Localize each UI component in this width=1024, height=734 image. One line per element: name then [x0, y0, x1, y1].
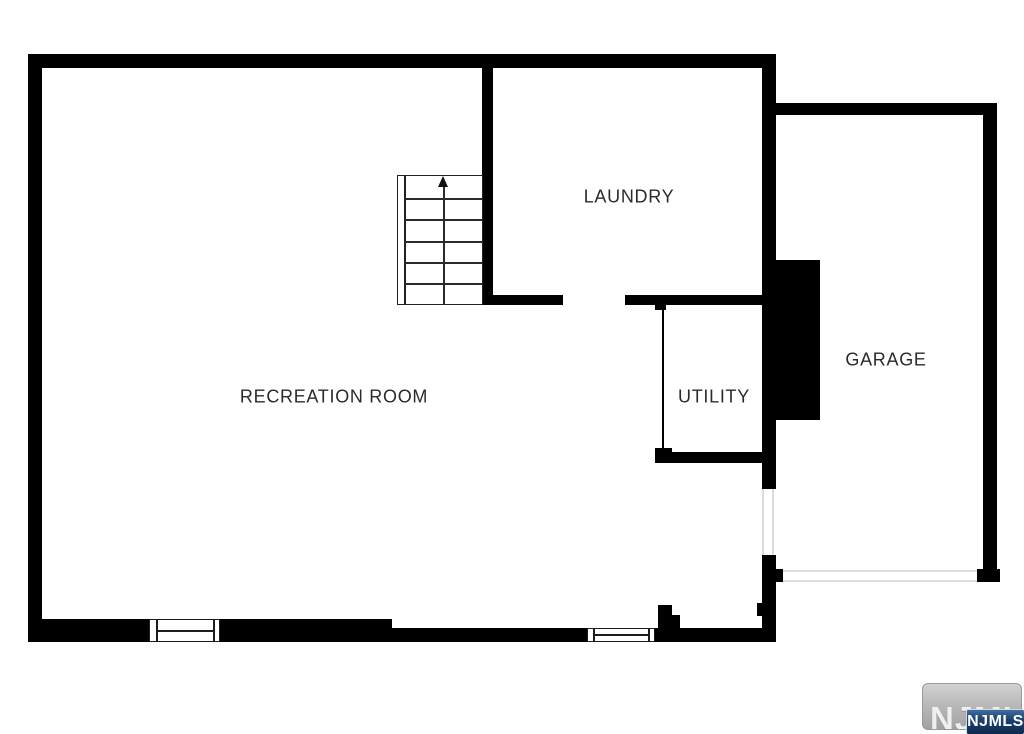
window-frame-line	[156, 630, 214, 632]
exterior-wall-right-lower	[762, 555, 776, 642]
window-recreation-room	[149, 619, 220, 642]
chimney-block	[776, 260, 820, 420]
floorplan-basement: RECREATION ROOM LAUNDRY UTILITY GARAGE N…	[0, 0, 1024, 734]
stair-direction-line	[443, 185, 445, 304]
window-frame-line	[593, 634, 649, 636]
laundry-bottom-wall-left-segment	[482, 295, 563, 305]
room-label-garage: GARAGE	[845, 350, 926, 371]
room-label-laundry: LAUNDRY	[584, 187, 675, 208]
stair-rail-line	[404, 176, 406, 304]
exterior-wall-bottom-right-segment	[392, 628, 776, 642]
exterior-wall-top	[28, 54, 776, 68]
laundry-bottom-wall-right-segment	[625, 295, 776, 305]
room-label-utility: UTILITY	[678, 387, 750, 408]
garage-doorway-frame-line	[772, 489, 774, 555]
utility-top-door-jamb	[655, 305, 666, 310]
window-bottom-right	[587, 628, 655, 642]
garage-door-line	[783, 580, 977, 582]
room-label-recreation: RECREATION ROOM	[240, 387, 428, 408]
njmls-badge-text: NJMLS	[967, 713, 1024, 731]
exterior-wall-left	[28, 54, 42, 642]
njmls-badge: NJMLS	[966, 709, 1024, 734]
utility-left-partition	[662, 310, 664, 452]
exterior-wall-right-upper	[762, 54, 776, 489]
bottom-stub-wall-foot	[672, 615, 680, 628]
utility-bottom-wall	[655, 452, 776, 463]
garage-wall-top	[763, 103, 997, 115]
stairs-up-arrow-icon	[438, 176, 448, 187]
staircase	[397, 175, 483, 305]
garage-door-corner-right	[977, 569, 1000, 582]
wall-jamb-right-lower	[757, 603, 762, 616]
garage-doorway-frame-line	[762, 489, 764, 555]
garage-door-line	[783, 570, 977, 572]
garage-wall-right	[983, 103, 997, 582]
bottom-stub-wall	[658, 605, 672, 628]
garage-door-corner-left	[776, 569, 783, 582]
interior-wall-laundry-divider	[482, 68, 493, 305]
